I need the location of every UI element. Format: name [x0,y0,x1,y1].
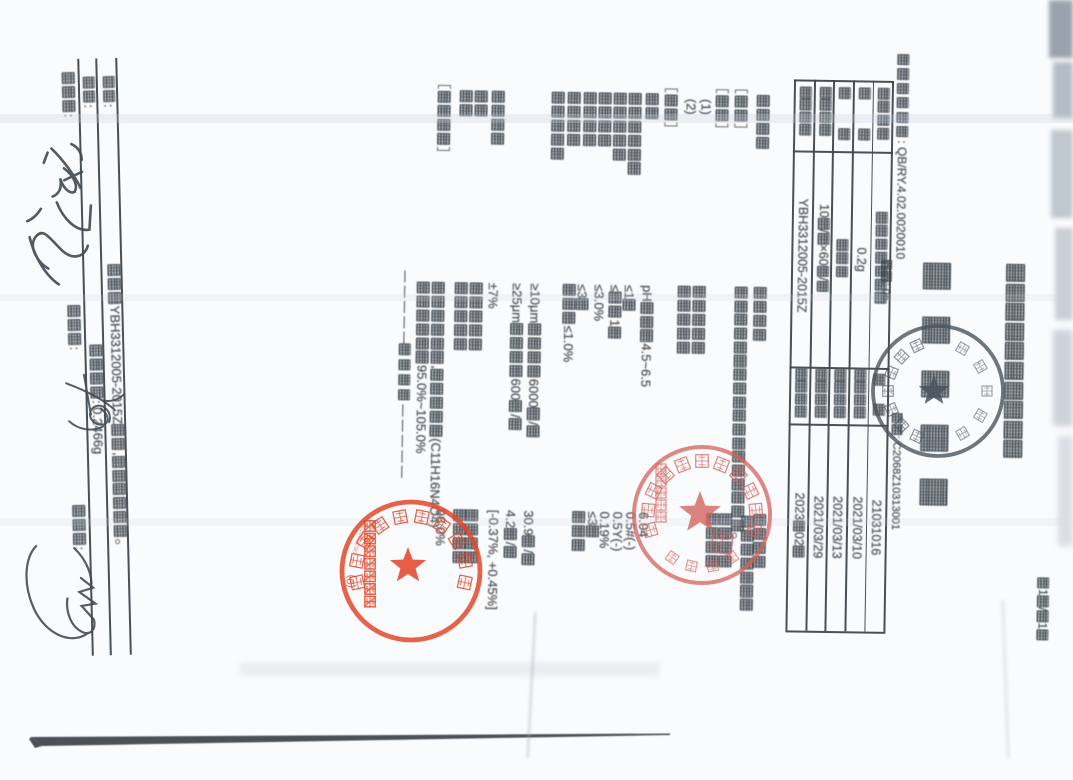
svg-text:(9): (9) [345,575,357,588]
